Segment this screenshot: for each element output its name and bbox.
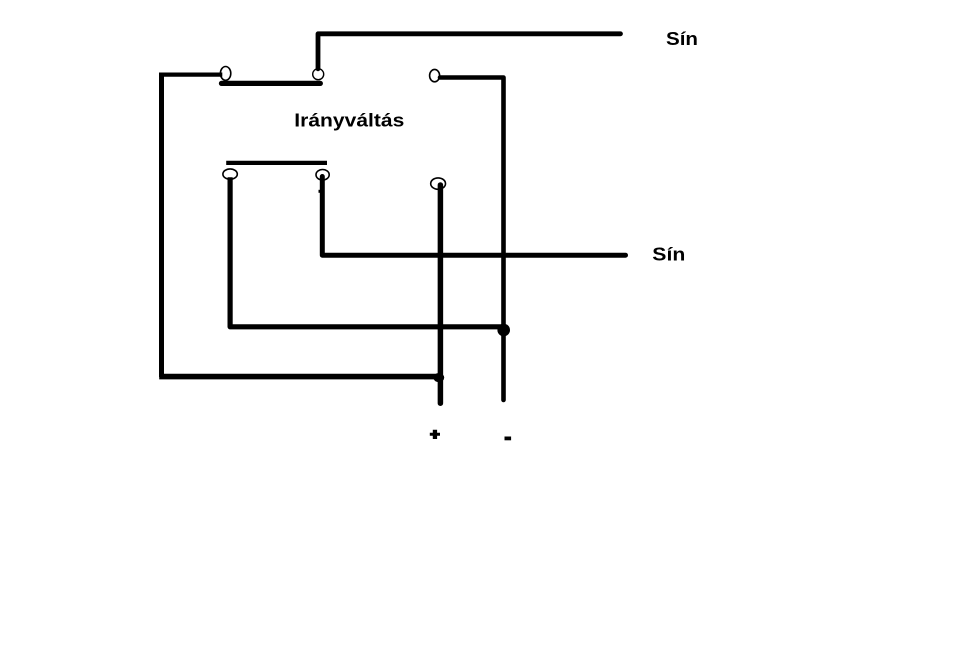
svg-text:Sín: Sín	[666, 29, 698, 49]
svg-text:Irányváltás: Irányváltás	[294, 111, 404, 131]
svg-text:Sín: Sín	[652, 245, 685, 265]
